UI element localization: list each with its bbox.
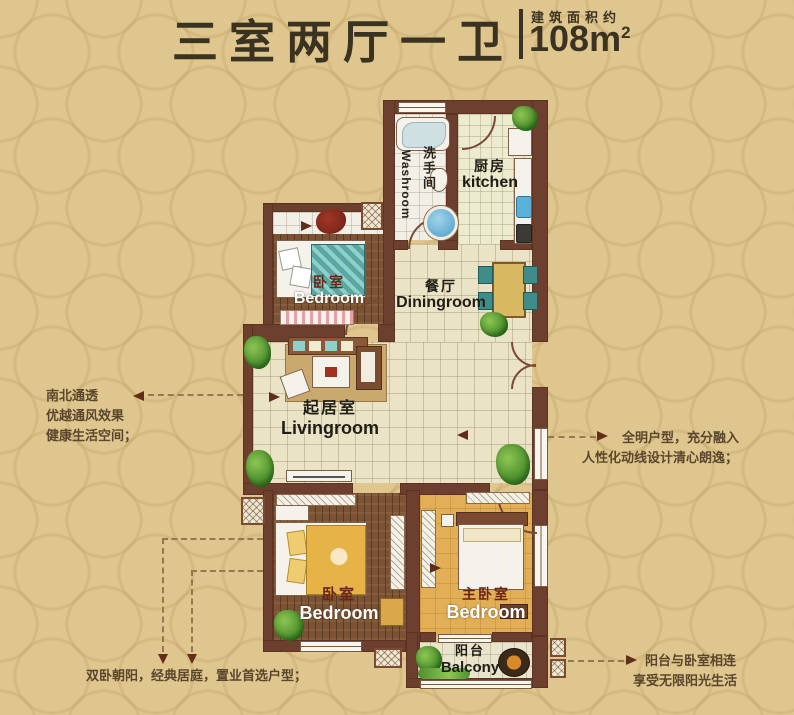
wall: [532, 636, 548, 688]
balcony-sliding-door: [438, 634, 492, 643]
annotation-left-line1: 南北通透: [46, 386, 137, 406]
duct-shaft: [374, 648, 402, 668]
annotation-bottom-right-line2: 享受无限阳光生活: [633, 671, 737, 691]
armchair: [356, 346, 382, 390]
pointer-arrow-icon: [430, 563, 441, 573]
column: [550, 638, 566, 657]
room-label-living: 起居室 Livingroom: [270, 400, 390, 439]
stove-icon: [516, 224, 532, 243]
plant-icon: [512, 106, 538, 131]
room-label-dining: 餐厅 Diningroom: [385, 278, 497, 312]
annotation-dash-line: [568, 660, 624, 662]
plant-icon: [496, 444, 530, 485]
pointer-arrow-icon: [457, 430, 468, 440]
duct-shaft: [361, 202, 383, 230]
annotation-arrow-icon: [597, 431, 608, 441]
wall: [492, 632, 532, 642]
wall: [393, 240, 408, 250]
annotation-left: 南北通透 优越通风效果 健康生活空间；: [46, 386, 137, 446]
header-divider: [519, 9, 523, 59]
annotation-arrow-icon: [158, 654, 168, 664]
window: [534, 525, 548, 587]
annotation-dash-line: [162, 538, 263, 540]
window: [398, 102, 446, 113]
blanket: [306, 525, 366, 595]
cushion: [341, 341, 353, 351]
kitchen-sink-icon: [516, 196, 532, 218]
wardrobe: [421, 510, 436, 588]
pillow: [286, 530, 307, 556]
annotation-dash-line: [548, 436, 596, 438]
column: [550, 659, 566, 678]
floor-plan-page: 三室两厅一卫 建筑面积约 108m2: [0, 0, 794, 715]
annotation-arrow-icon: [626, 655, 637, 665]
dining-chair: [523, 266, 538, 284]
area-value: 108m2: [529, 21, 631, 57]
pillow: [286, 558, 307, 584]
column: [241, 497, 265, 525]
room-label-balcony: 阳台 Balcony: [426, 644, 514, 676]
tv-cabinet: [286, 470, 352, 482]
page-title: 三室两厅一卫: [172, 6, 514, 72]
table-decor: [325, 367, 337, 377]
annotation-right-line2: 人性化动线设计清心朗逸；: [582, 448, 738, 468]
window: [534, 428, 548, 480]
annotation-right-line1: 全明户型，充分融入: [622, 428, 739, 448]
annotation-left-line2: 优越通风效果: [46, 406, 137, 426]
nightstand: [441, 514, 454, 527]
room-label-washroom-en: Washroom: [399, 150, 413, 220]
annotation-bottom-right-line1: 阳台与卧室相连: [645, 651, 736, 671]
wall: [406, 490, 420, 650]
wardrobe: [466, 492, 530, 504]
annotation-left-line3: 健康生活空间；: [46, 426, 137, 446]
wall: [420, 632, 436, 642]
dresser: [280, 310, 354, 325]
cushion: [361, 352, 375, 382]
balcony-railing: [420, 680, 532, 689]
room-label-kitchen: 厨房 kitchen: [448, 158, 532, 192]
cushion: [293, 341, 305, 351]
dining-table: [492, 262, 526, 318]
area-superscript: 2: [621, 23, 630, 42]
pillow: [463, 528, 521, 542]
bed-master-bedroom: [458, 524, 524, 590]
washbasin-icon: [424, 206, 458, 240]
annotation-dash-line: [191, 570, 193, 652]
bathtub-basin: [402, 122, 446, 148]
room-label-bedroom-master: 主卧室 Bedroom: [434, 586, 538, 623]
coffee-table: [312, 356, 350, 388]
annotation-bottom-left: 双卧朝阳，经典居庭，置业首选户型；: [86, 666, 307, 686]
annotation-dash-line: [162, 538, 164, 652]
wall: [438, 240, 458, 250]
cushion: [325, 341, 337, 351]
plant-icon: [246, 450, 274, 487]
annotation-dash-line: [191, 570, 263, 572]
plant-icon: [244, 336, 271, 369]
fridge: [508, 128, 532, 156]
pointer-arrow-icon: [301, 221, 312, 231]
wall: [378, 324, 395, 342]
dining-chair: [523, 292, 538, 310]
annotation-dash-line: [148, 394, 243, 396]
tv: [293, 476, 345, 478]
annotation-arrow-icon: [187, 654, 197, 664]
annotation-arrow-icon: [133, 391, 144, 401]
room-label-bedroom-left: 卧室 Bedroom: [285, 586, 393, 624]
plant-icon: [480, 312, 508, 337]
wall: [263, 203, 273, 332]
room-label-bedroom-top: 卧室 Bedroom: [283, 274, 375, 308]
cushion: [309, 341, 321, 351]
room-label-washroom-cn: 洗手间: [419, 146, 438, 191]
wardrobe: [390, 515, 405, 590]
dresser: [275, 505, 309, 521]
window: [300, 641, 362, 652]
bed-left-bedroom: [275, 522, 367, 596]
